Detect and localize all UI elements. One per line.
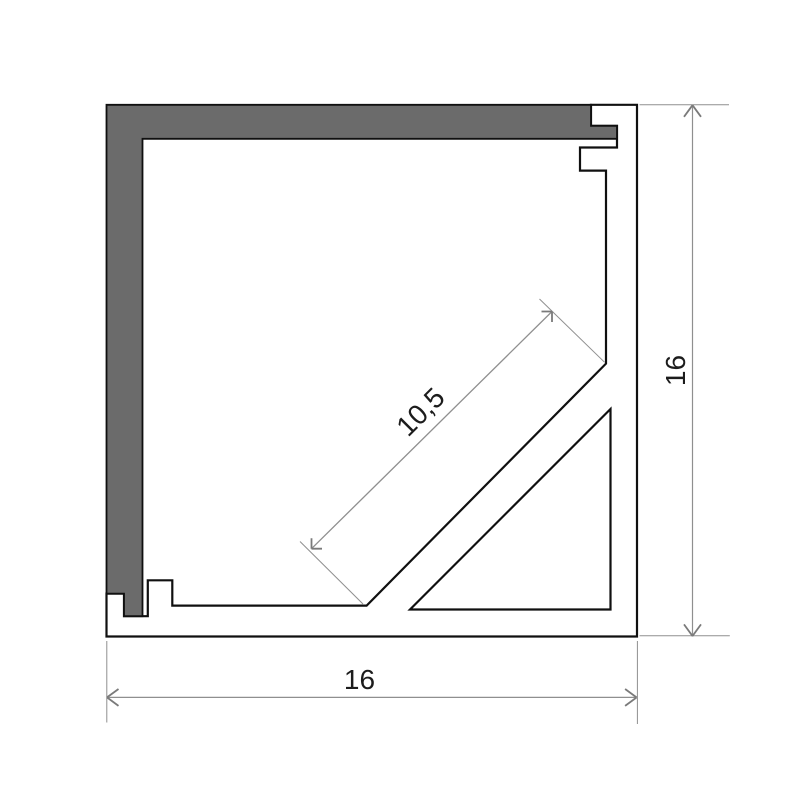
svg-text:16: 16	[344, 664, 375, 695]
svg-text:16: 16	[660, 355, 691, 386]
